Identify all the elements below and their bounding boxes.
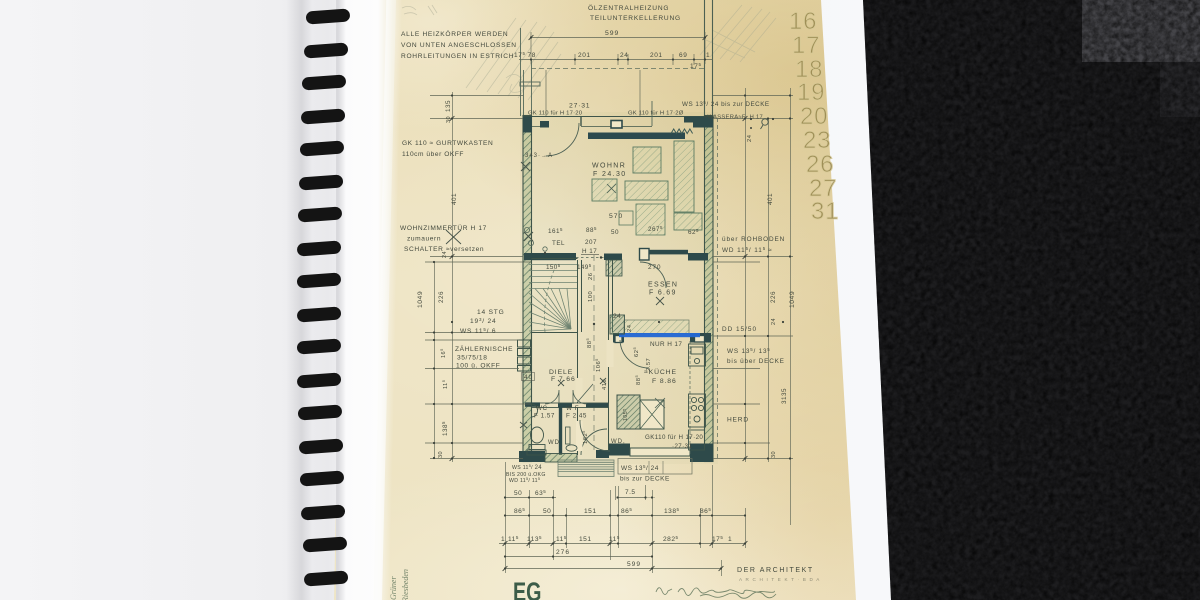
svg-text:GK 110 für H 17·20: GK 110 für H 17·20 <box>528 111 583 117</box>
svg-text:115: 115 <box>508 535 519 543</box>
svg-text:635: 635 <box>535 489 546 497</box>
svg-text:WC: WC <box>536 405 548 412</box>
svg-text:F 7.66: F 7.66 <box>551 376 576 383</box>
svg-text:2.57: 2.57 <box>646 358 652 371</box>
svg-text:151: 151 <box>584 508 597 515</box>
svg-text:27·31: 27·31 <box>569 103 590 110</box>
svg-text:24: 24 <box>613 313 621 320</box>
svg-text:TEILUNTERKELLERUNG: TEILUNTERKELLERUNG <box>590 15 681 22</box>
svg-text:20: 20 <box>800 103 828 130</box>
svg-text:401: 401 <box>767 193 774 205</box>
svg-text:A R C H I T E K T · B D A: A R C H I T E K T · B D A <box>739 577 820 582</box>
svg-text:WD,: WD, <box>611 439 626 445</box>
svg-text:WS 115/ 24: WS 115/ 24 <box>512 464 542 471</box>
svg-text:226: 226 <box>438 291 445 303</box>
svg-text:24: 24 <box>442 251 448 258</box>
svg-text:1385: 1385 <box>441 421 449 436</box>
svg-text:1: 1 <box>706 52 710 59</box>
svg-text:WOHNR: WOHNR <box>592 163 626 170</box>
svg-text:40: 40 <box>524 374 533 381</box>
svg-text:W F: W F <box>566 405 579 412</box>
svg-text:über ROHBODEN: über ROHBODEN <box>722 236 785 243</box>
svg-text:ZÄHLERNISCHE: ZÄHLERNISCHE <box>455 345 513 353</box>
svg-text:401: 401 <box>451 193 458 205</box>
svg-text:Grüner: Grüner <box>389 576 398 600</box>
svg-text:GK 110 ≈ GURTWKASTEN: GK 110 ≈ GURTWKASTEN <box>402 140 493 147</box>
svg-text:599: 599 <box>605 30 619 37</box>
svg-text:14 STG: 14 STG <box>477 309 505 316</box>
svg-text:1: 1 <box>728 536 732 543</box>
svg-text:1049: 1049 <box>789 291 796 308</box>
svg-text:1385: 1385 <box>664 507 680 515</box>
svg-text:1135: 1135 <box>527 535 542 543</box>
svg-text:HERD: HERD <box>727 417 749 424</box>
svg-text:865: 865 <box>700 507 711 515</box>
svg-text:GK110 für H 17·20·: GK110 für H 17·20· <box>645 434 706 441</box>
svg-text:WOHNZIMMERTÜR H 17: WOHNZIMMERTÜR H 17 <box>400 224 487 232</box>
svg-text:100: 100 <box>588 291 594 302</box>
svg-text:35/75/18: 35/75/18 <box>457 355 487 362</box>
svg-text:50: 50 <box>543 508 551 515</box>
svg-text:599: 599 <box>627 561 641 568</box>
svg-text:26: 26 <box>588 273 594 280</box>
svg-text:270: 270 <box>648 264 662 271</box>
svg-text:WD 115/ 115: WD 115/ 115 <box>509 477 540 484</box>
svg-text:193/ 24: 193/ 24 <box>470 317 496 325</box>
svg-text:201: 201 <box>650 52 663 59</box>
svg-text:110cm über OKFF: 110cm über OKFF <box>402 151 464 158</box>
svg-text:1049: 1049 <box>417 291 424 308</box>
svg-text:16: 16 <box>789 8 817 35</box>
svg-text:135: 135 <box>445 100 452 112</box>
svg-text:Riesbeden: Riesbeden <box>401 569 410 600</box>
svg-text:31: 31 <box>811 198 839 225</box>
svg-text:17: 17 <box>792 32 820 59</box>
svg-text:DD 15/50: DD 15/50 <box>722 326 757 333</box>
svg-text:69: 69 <box>679 52 687 59</box>
svg-text:24: 24 <box>747 134 753 142</box>
svg-text:zumauern: zumauern <box>407 236 441 243</box>
svg-text:DIELE: DIELE <box>549 369 573 376</box>
svg-text:50: 50 <box>514 490 522 497</box>
svg-text:F 24.30: F 24.30 <box>593 171 627 178</box>
svg-text:GK 110 für H 17·2Ø: GK 110 für H 17·2Ø <box>628 111 684 117</box>
svg-text:276: 276 <box>556 549 570 556</box>
svg-text:F 1.57: F 1.57 <box>534 413 555 420</box>
svg-text:bis zur DECKE: bis zur DECKE <box>620 476 670 483</box>
svg-text:26: 26 <box>806 151 834 178</box>
svg-text:ESSEN: ESSEN <box>648 282 678 289</box>
svg-text:865: 865 <box>621 507 632 515</box>
svg-text:7.5: 7.5 <box>625 489 636 496</box>
svg-text:F 8.86: F 8.86 <box>652 378 677 385</box>
svg-text:ROHRLEITUNGEN IN ESTRICH: ROHRLEITUNGEN IN ESTRICH <box>401 53 514 60</box>
svg-text:TEL: TEL <box>552 240 565 247</box>
svg-text:H 17: H 17 <box>582 248 597 255</box>
svg-text:24: 24 <box>627 324 633 332</box>
svg-text:175: 175 <box>712 535 723 543</box>
svg-text:50: 50 <box>611 229 619 236</box>
svg-text:23: 23 <box>803 127 831 154</box>
svg-text:NUR H 17: NUR H 17 <box>650 341 682 348</box>
svg-text:17578: 17578 <box>514 51 536 59</box>
svg-text:19: 19 <box>797 79 825 106</box>
svg-text:F 6.69: F 6.69 <box>649 290 677 297</box>
svg-text:bis über DECKE: bis über DECKE <box>727 358 785 365</box>
svg-text:24: 24 <box>771 318 777 325</box>
svg-text:ÖLZENTRALHEIZUNG: ÖLZENTRALHEIZUNG <box>588 4 669 12</box>
svg-text:ALLE HEIZKÖRPER WERDEN: ALLE HEIZKÖRPER WERDEN <box>401 30 508 38</box>
svg-text:343·→A: 343·→A <box>525 153 553 159</box>
svg-text:WS 115/ 6: WS 115/ 6 <box>460 327 496 335</box>
svg-text:WS 135/ 24 bis zur DECKE: WS 135/ 24 bis zur DECKE <box>682 100 770 108</box>
svg-text:115: 115 <box>441 379 449 389</box>
svg-text:30: 30 <box>446 116 452 123</box>
svg-text:DER ARCHITEKT: DER ARCHITEKT <box>737 567 814 574</box>
svg-text:2825: 2825 <box>663 535 679 543</box>
svg-text:30: 30 <box>438 451 444 458</box>
svg-text:165: 165 <box>439 348 447 358</box>
svg-text:207: 207 <box>585 239 597 246</box>
svg-text:1: 1 <box>501 536 505 543</box>
svg-text:24: 24 <box>620 52 628 59</box>
svg-text:≈WASSERA≈F H 17: ≈WASSERA≈F H 17 <box>704 115 763 121</box>
svg-text:WD: WD <box>548 440 560 446</box>
svg-text:WS 135/ 24: WS 135/ 24 <box>621 464 659 472</box>
svg-text:115: 115 <box>556 535 567 543</box>
svg-text:WS 135/ 135: WS 135/ 135 <box>727 347 771 355</box>
svg-text:3135: 3135 <box>781 388 788 404</box>
svg-text:VON UNTEN ANGESCHLOSSEN: VON UNTEN ANGESCHLOSSEN <box>401 42 517 49</box>
svg-text:865: 865 <box>514 507 525 515</box>
svg-text:570: 570 <box>609 213 623 220</box>
svg-text:100 ü. OKFF: 100 ü. OKFF <box>456 363 500 370</box>
svg-text:30: 30 <box>771 451 777 458</box>
svg-text:·27·31: ·27·31 <box>672 443 692 450</box>
svg-text:WD 115/ 115≈: WD 115/ 115≈ <box>722 246 772 254</box>
svg-text:151: 151 <box>579 536 592 543</box>
svg-text:201: 201 <box>578 52 591 59</box>
svg-text:EG: EG <box>513 578 541 600</box>
svg-text:F 2.45: F 2.45 <box>566 413 587 420</box>
svg-text:226: 226 <box>770 291 777 303</box>
